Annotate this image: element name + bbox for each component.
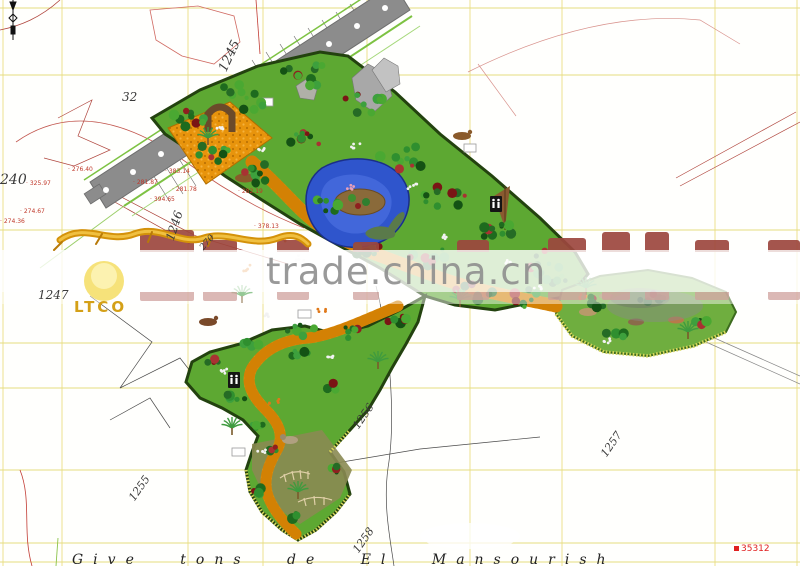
company-logo: LTCO [42, 210, 312, 320]
parcel-label-270: 270 [198, 233, 217, 252]
dinosaur-enclosure [556, 270, 736, 356]
restroom-sign-icon [228, 372, 240, 388]
park-lower-arm [186, 296, 425, 540]
spot-elevation: 383.14 [165, 168, 190, 175]
parcel-label-1257: 1257 [598, 429, 625, 459]
spot-elevation: 274.36 [0, 218, 25, 225]
entrance-plaza [168, 102, 272, 184]
parcel-label-1258: 1258 [350, 525, 377, 555]
park-upper-arm [152, 52, 588, 310]
enclosure-fence [556, 314, 726, 356]
park-area [152, 52, 736, 549]
watermark-band-lower [0, 292, 800, 304]
sail-feature [494, 186, 510, 228]
pond [306, 159, 409, 248]
parcel-label-32: 32 [122, 90, 137, 104]
survey-caption: Give tons de El Mansourish [72, 552, 616, 566]
watermark-text: trade.china.cn [266, 250, 546, 293]
fossil-dig-area [252, 430, 352, 524]
spot-elevation: 276.40 [68, 166, 93, 173]
site-plan-canvas: trade.china.cn LTCO 32 1245 240 1246 270… [0, 0, 800, 566]
spot-elevation: 281.87 [133, 179, 158, 186]
fossil-area-fence [246, 430, 350, 540]
parcel-label-1245: 1245 [216, 38, 244, 74]
benchmark-marker: 35312 [734, 544, 770, 554]
dinosaur-figures [199, 130, 684, 444]
spot-elevation: 378.13 [254, 223, 279, 230]
embankment-hatching [150, 4, 370, 202]
parcel-label-1246: 1246 [163, 209, 186, 242]
road-centerline-dots [103, 5, 388, 193]
logo-sun-icon [84, 261, 124, 301]
info-signboard [232, 98, 476, 456]
pond-island [335, 189, 385, 215]
spot-elevation: 325.97 [26, 180, 51, 187]
parcel-label-240: 240 [0, 172, 27, 188]
parcel-label-1256: 1256 [350, 401, 377, 431]
highway-road [40, 0, 420, 268]
restroom-sign-icon [490, 196, 502, 212]
parcel-label-1255: 1255 [126, 473, 153, 503]
spot-elevation: 274.67 [20, 208, 45, 215]
spot-elevation: 281.78 [172, 186, 197, 193]
site-plan-scene [0, 0, 800, 566]
rock-arch-gate [208, 107, 232, 132]
tree-planting [169, 61, 712, 523]
watermark-band [0, 250, 800, 292]
park-paths [249, 162, 556, 534]
smudge [607, 290, 703, 322]
logo-dragon-icon [54, 231, 308, 250]
spot-elevation: 282.19 [238, 188, 263, 195]
rock-formation [296, 58, 400, 112]
boundary-lines [90, 286, 800, 566]
survey-grid [0, 0, 800, 566]
contour-lines [0, 0, 800, 566]
fossil-skeletons [280, 470, 332, 506]
parcel-label-1247: 1247 [38, 288, 69, 302]
logo-text: LTCO [74, 298, 127, 316]
north-arrow-icon [9, 0, 17, 40]
spot-elevation: 394.65 [150, 196, 175, 203]
